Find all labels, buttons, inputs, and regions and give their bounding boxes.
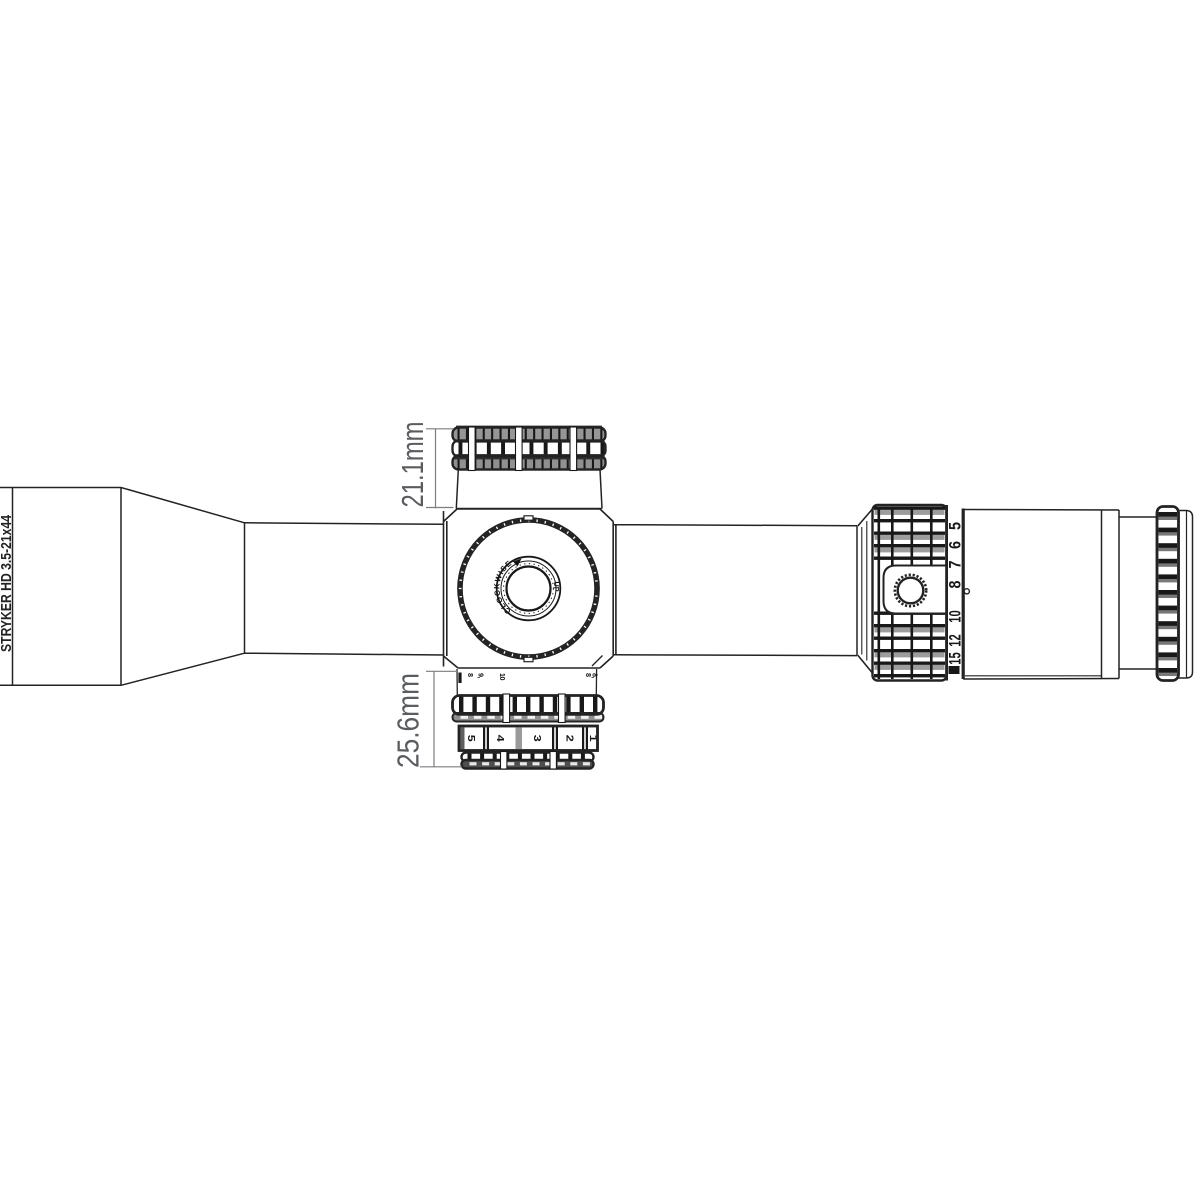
svg-text:4: 4 [494, 735, 505, 743]
svg-text:12: 12 [946, 634, 965, 647]
svg-text:2: 2 [564, 735, 575, 743]
svg-text:8: 8 [466, 673, 475, 677]
svg-text:5: 5 [465, 735, 476, 743]
svg-text:5: 5 [946, 522, 965, 530]
svg-text:6: 6 [946, 541, 965, 549]
svg-text:25.6mm: 25.6mm [391, 673, 426, 768]
svg-text:8: 8 [946, 581, 965, 589]
svg-text:3: 3 [531, 735, 542, 743]
svg-text:15: 15 [946, 652, 965, 665]
svg-text:10: 10 [498, 673, 507, 680]
svg-text:8,: 8, [590, 673, 599, 678]
svg-text:STRYKER HD 3.5-21x44: STRYKER HD 3.5-21x44 [0, 514, 15, 652]
svg-text:10: 10 [946, 610, 965, 623]
svg-text:9,: 9, [476, 673, 485, 678]
svg-text:7: 7 [946, 561, 965, 569]
svg-text:UP: UP [552, 582, 561, 592]
svg-text:21.1mm: 21.1mm [395, 422, 430, 508]
